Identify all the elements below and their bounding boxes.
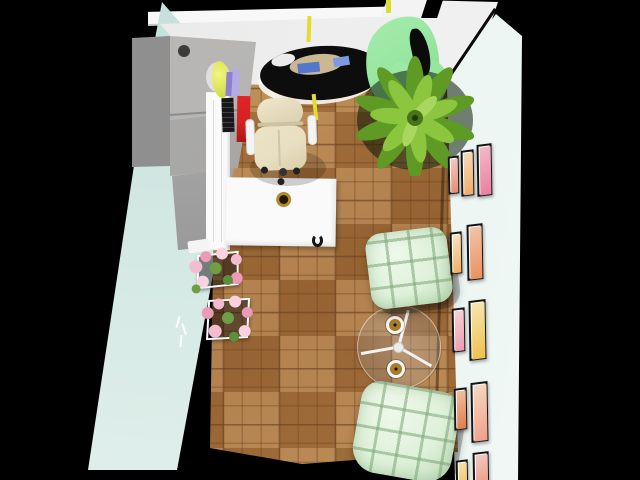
flower-basket [197, 292, 259, 343]
tufted-chair-top [364, 225, 455, 310]
brass-cup [387, 360, 405, 378]
gallery-frame [470, 381, 488, 443]
chair-armrest [307, 115, 317, 145]
chair-seat [254, 125, 308, 171]
gallery-frame [454, 387, 468, 431]
chair-caster [277, 178, 284, 185]
table-hub [393, 342, 404, 353]
gallery-frame [450, 231, 463, 274]
gallery-frame [461, 149, 475, 197]
office-chair [244, 93, 321, 188]
gallery-frame [467, 223, 484, 281]
blue-box [333, 56, 350, 67]
gallery-frame [468, 299, 486, 361]
chair-armrest [245, 119, 255, 155]
wardrobe-knob [178, 45, 190, 57]
potted-plant [352, 54, 478, 176]
room-render [0, 0, 640, 480]
desk-lamp-clamp [312, 234, 323, 247]
gallery-frame [448, 155, 460, 194]
tufted-chair-bottom [349, 378, 463, 480]
chair-post [279, 168, 287, 176]
chair-caster [261, 167, 268, 174]
dark-book [221, 98, 234, 132]
flower-basket [186, 245, 251, 299]
desk-brass-knob [276, 192, 291, 207]
gallery-frame [452, 307, 466, 353]
gallery-frame [477, 143, 493, 197]
gallery-frame [473, 451, 490, 480]
brass-cup [386, 316, 404, 334]
chair-caster [293, 167, 300, 174]
yellow-stripe [386, 0, 391, 13]
gallery-frame [456, 459, 469, 480]
